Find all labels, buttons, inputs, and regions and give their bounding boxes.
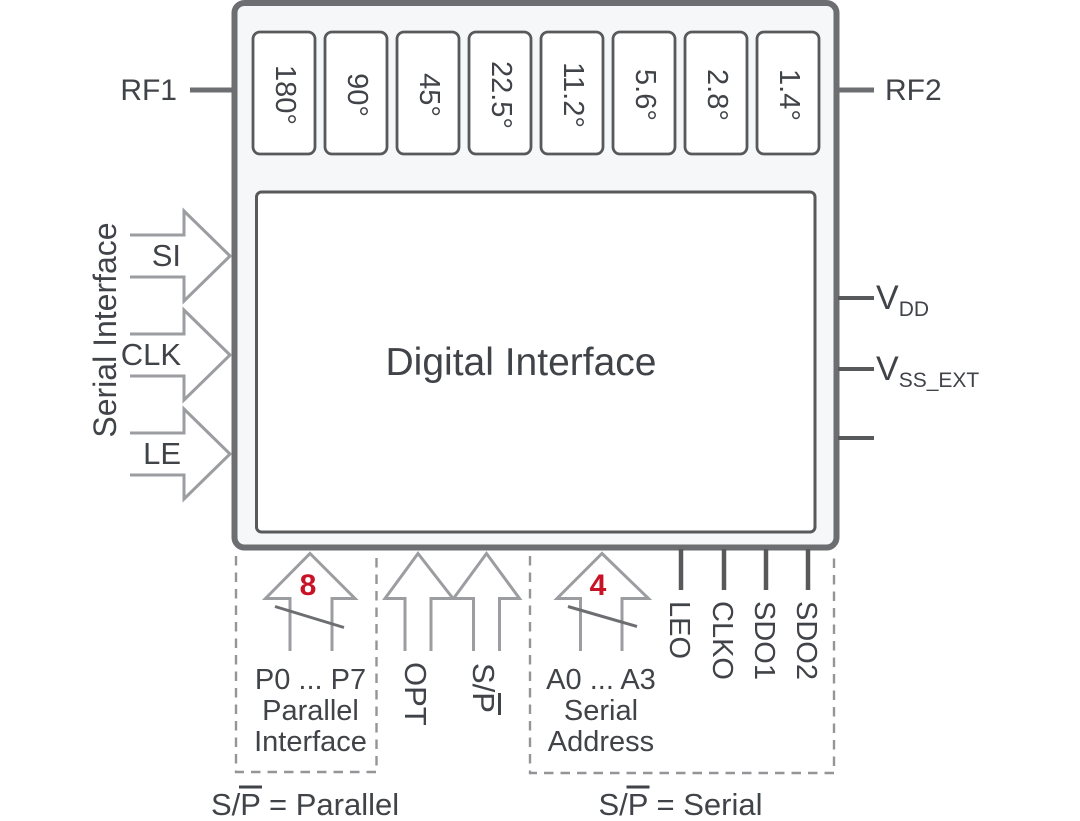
svg-text:CLK: CLK [121,337,182,372]
svg-text:8: 8 [300,569,317,602]
svg-text:Serial Interface: Serial Interface [87,222,123,437]
svg-text:SDO1: SDO1 [748,601,780,680]
svg-text:45°: 45° [413,73,445,117]
svg-text:SDO2: SDO2 [790,601,822,680]
svg-text:90°: 90° [341,73,373,117]
svg-text:S/P = Serial: S/P = Serial [599,787,763,821]
svg-text:LEO: LEO [663,601,695,659]
svg-text:Interface: Interface [254,726,367,758]
svg-text:2.8°: 2.8° [701,69,733,121]
svg-text:Digital Interface: Digital Interface [386,341,657,384]
svg-text:RF1: RF1 [120,74,177,107]
svg-text:S/P: S/P [466,663,501,713]
svg-text:OPT: OPT [398,662,433,726]
svg-text:CLKO: CLKO [706,601,738,680]
svg-text:P0 ... P7: P0 ... P7 [255,664,366,696]
svg-text:11.2°: 11.2° [557,62,589,128]
svg-text:4: 4 [590,569,607,602]
svg-text:Serial: Serial [564,695,638,727]
svg-text:A0 ... A3: A0 ... A3 [546,664,656,696]
svg-text:5.6°: 5.6° [629,69,661,121]
svg-text:LE: LE [143,436,181,471]
svg-text:Address: Address [548,726,654,758]
svg-text:RF2: RF2 [885,74,942,107]
svg-text:Parallel: Parallel [262,695,359,727]
svg-text:1.4°: 1.4° [773,69,805,121]
svg-text:22.5°: 22.5° [485,61,517,129]
svg-text:180°: 180° [269,65,301,125]
svg-text:SI: SI [152,238,181,273]
svg-text:S/P = Parallel: S/P = Parallel [211,787,399,821]
